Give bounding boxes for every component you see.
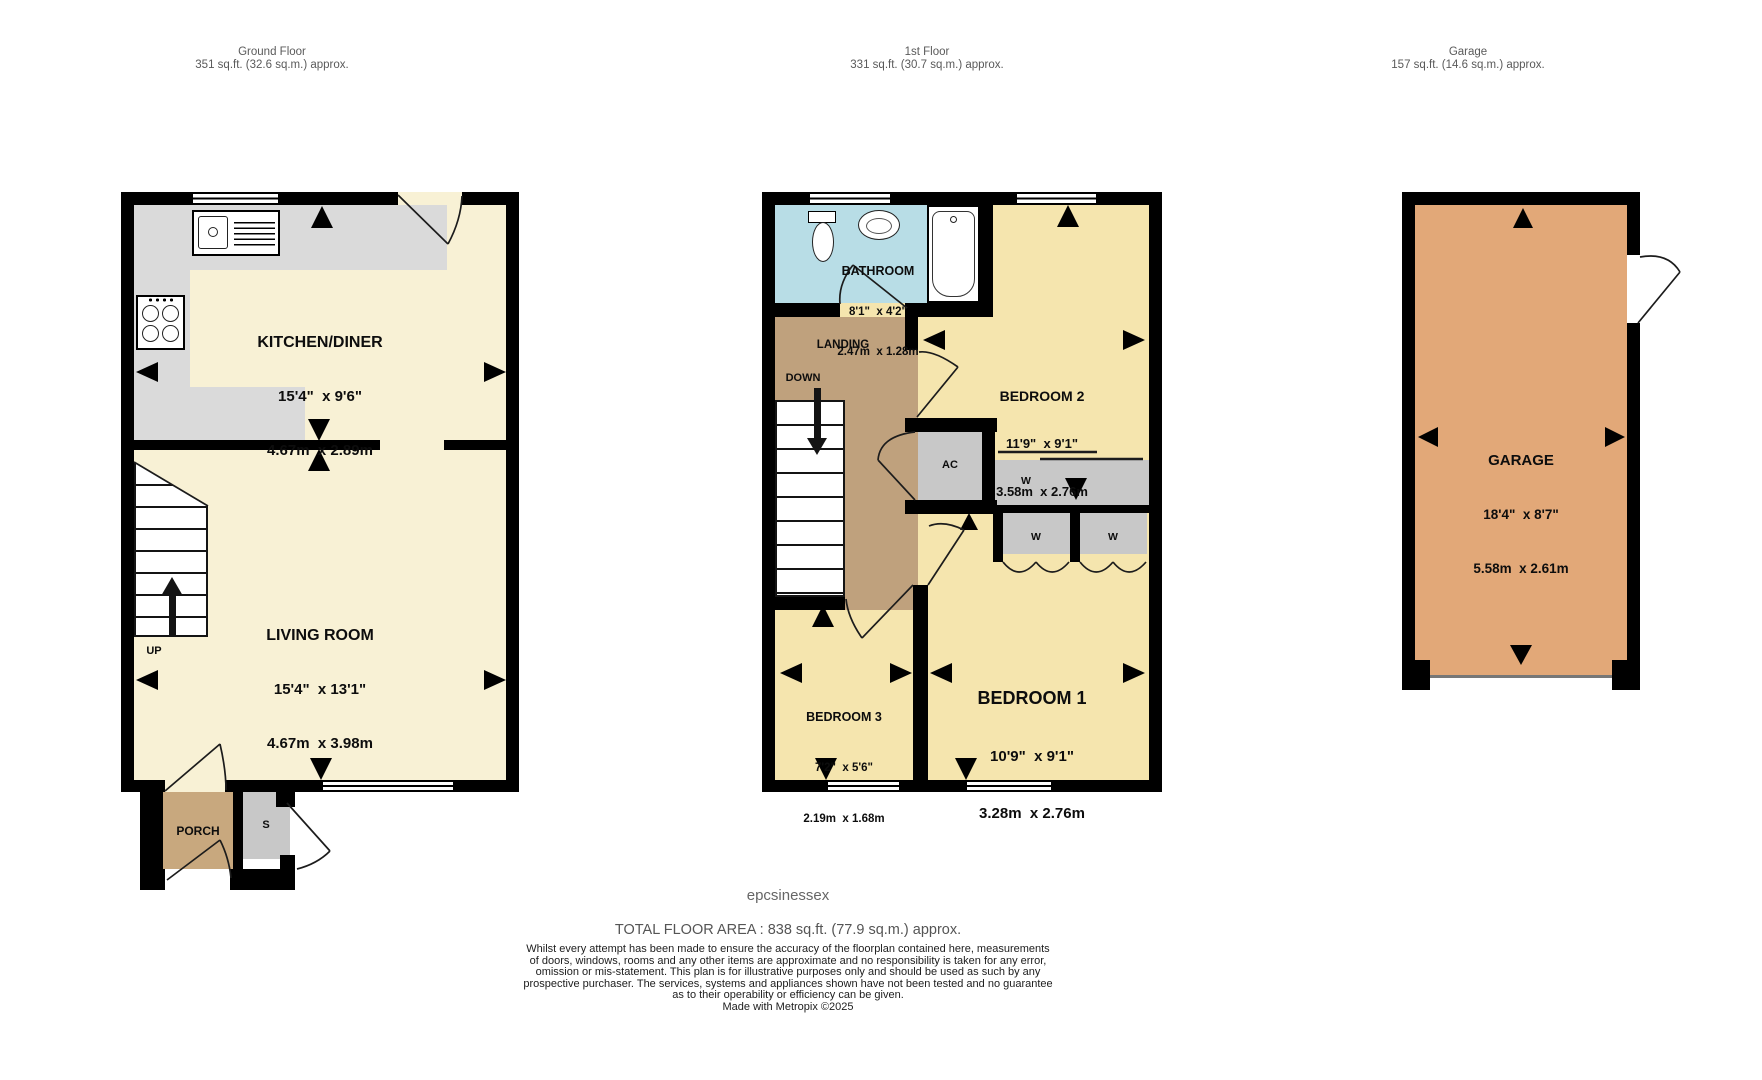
garage-door-line (1430, 675, 1612, 678)
floorplan-page: Ground Floor 351 sq.ft. (32.6 sq.m.) app… (0, 0, 1762, 1080)
landing-doorway-fill (845, 585, 913, 610)
first-floor-stairs (775, 400, 845, 597)
bedroom1-dims-metric: 3.28m x 2.76m (977, 805, 1086, 822)
up-arrow-icon (169, 595, 176, 635)
sink-drainer-icon (234, 218, 275, 249)
garage-header: Garage 157 sq.ft. (14.6 sq.m.) approx. (1391, 46, 1544, 72)
hob-burner-icon (162, 305, 179, 322)
first-floor-plan: BATHROOM 8'1" x 4'2" 2.47m x 1.28m LANDI… (762, 192, 1162, 792)
kitchen-window (193, 192, 278, 205)
toilet-bowl-icon (812, 222, 834, 262)
ac-wall-bottom (905, 500, 997, 514)
garage-dims-metric: 5.58m x 2.61m (1473, 560, 1568, 578)
arrow-left-icon (1418, 427, 1438, 447)
arrow-up-icon (1513, 208, 1533, 228)
outer-wall-right (1627, 323, 1640, 660)
living-room-dims-imperial: 15'4" x 13'1" (266, 681, 374, 699)
arrow-up-icon (812, 605, 834, 627)
porch-store-wall (233, 792, 243, 869)
down-arrow-head-icon (807, 438, 827, 455)
living-room-label: LIVING ROOM 15'4" x 13'1" 4.67m x 3.98m (266, 591, 374, 789)
first-floor-area: 331 sq.ft. (30.7 sq.m.) approx. (850, 59, 1003, 72)
arrow-up-icon (311, 206, 333, 228)
garage-dims-imperial: 18'4" x 8'7" (1473, 506, 1568, 524)
wardrobe-label: W (1021, 475, 1031, 487)
kitchen-living-wall (444, 440, 506, 450)
entry-door-opening (398, 192, 462, 205)
first-floor-header: 1st Floor 331 sq.ft. (30.7 sq.m.) approx… (850, 46, 1003, 72)
hob-burner-icon (162, 325, 179, 342)
hob-knobs-icon (147, 298, 175, 302)
hob-burner-icon (142, 305, 159, 322)
arrow-left-icon (923, 330, 945, 350)
arrow-left-icon (930, 663, 952, 683)
basin-inner-icon (866, 218, 892, 234)
garage-name: GARAGE (1473, 452, 1568, 470)
kitchen-label: KITCHEN/DINER 15'4" x 9'6" 4.67m x 2.89m (257, 298, 382, 496)
arrow-left-icon (136, 670, 158, 690)
living-room-name: LIVING ROOM (266, 627, 374, 645)
arrow-right-icon (1123, 663, 1145, 683)
outer-wall-right (1149, 192, 1162, 792)
outer-wall-bottom (453, 780, 519, 792)
bathroom-label: BATHROOM 8'1" x 4'2" 2.47m x 1.28m (837, 238, 918, 387)
bedroom3-label: BEDROOM 3 7'2" x 5'6" 2.19m x 1.68m (803, 675, 884, 862)
outer-wall-stub (1612, 660, 1640, 690)
up-label: UP (146, 645, 161, 657)
bathroom-wall-right (980, 192, 993, 317)
porch-label: PORCH (176, 824, 219, 838)
first-floor-title: 1st Floor (850, 46, 1003, 59)
outer-wall-top (278, 192, 398, 205)
garage-side-door-icon (1638, 256, 1680, 323)
garage-area: 157 sq.ft. (14.6 sq.m.) approx. (1391, 59, 1544, 72)
arrow-up-icon (960, 513, 978, 530)
ground-floor-plan: KITCHEN/DINER 15'4" x 9'6" 4.67m x 2.89m… (121, 192, 519, 898)
sink-drain-icon (208, 227, 218, 237)
outer-wall-top (462, 192, 519, 205)
store-wall-stub (280, 855, 295, 890)
kitchen-sink-icon (192, 210, 280, 256)
arrow-left-icon (136, 362, 158, 382)
arrow-left-icon (780, 663, 802, 683)
kitchen-dims-metric: 4.67m x 2.89m (257, 442, 382, 460)
garage-plan: GARAGE 18'4" x 8'7" 5.58m x 2.61m (1402, 192, 1640, 690)
outer-wall-top (121, 192, 193, 205)
bathroom-name: BATHROOM (837, 265, 918, 279)
ground-floor-header: Ground Floor 351 sq.ft. (32.6 sq.m.) app… (195, 46, 348, 72)
store-label: S (262, 819, 269, 831)
outer-wall-bottom (899, 780, 967, 792)
bedroom2-dims-imperial: 11'9" x 9'1" (996, 436, 1088, 452)
garage-title: Garage (1391, 46, 1544, 59)
bedroom1-dims-imperial: 10'9" x 9'1" (977, 748, 1086, 765)
kitchen-hob-icon (136, 295, 185, 350)
porch-wall-bottom (140, 869, 165, 890)
bedroom3-name: BEDROOM 3 (803, 709, 884, 726)
bedroom1-label: BEDROOM 1 10'9" x 9'1" 3.28m x 2.76m (977, 648, 1086, 862)
living-room-dims-metric: 4.67m x 3.98m (266, 735, 374, 753)
arrow-right-icon (484, 670, 506, 690)
outer-wall-left (121, 192, 134, 792)
outer-wall-left (762, 192, 775, 792)
bathroom-wall-bottom (907, 303, 993, 317)
disclaimer-text: Whilst every attempt has been made to en… (523, 944, 1052, 1014)
bathroom-dims-imperial: 8'1" x 4'2" (837, 306, 918, 320)
landing-label: LANDING (817, 339, 869, 351)
outer-wall-left (1402, 192, 1415, 660)
down-label: DOWN (786, 372, 821, 384)
bath-niche (927, 205, 980, 303)
arrow-down-icon (955, 758, 977, 780)
hob-burner-icon (142, 325, 159, 342)
total-floor-area: TOTAL FLOOR AREA : 838 sq.ft. (77.9 sq.m… (615, 922, 961, 939)
bathroom-window (810, 192, 890, 205)
arrow-right-icon (484, 362, 506, 382)
bath-tap-icon (950, 216, 957, 223)
bedroom2-dims-metric: 3.58m x 2.76m (996, 484, 1088, 500)
outer-wall-top (762, 192, 810, 205)
ground-floor-area: 351 sq.ft. (32.6 sq.m.) approx. (195, 59, 348, 72)
wardrobe-label: W (1108, 531, 1118, 543)
arrow-down-icon (1510, 645, 1532, 665)
outer-wall-right (1627, 192, 1640, 255)
outer-wall-top (890, 192, 1017, 205)
kitchen-dims-imperial: 15'4" x 9'6" (257, 388, 382, 406)
bedroom3-dims-imperial: 7'2" x 5'6" (803, 760, 884, 777)
wardrobe-label: W (1031, 531, 1041, 543)
outer-wall-stub (1402, 660, 1430, 690)
bedroom1-name: BEDROOM 1 (977, 688, 1086, 708)
bedroom1-bedroom3-wall (913, 585, 928, 780)
up-arrow-head-icon (161, 577, 183, 596)
ground-floor-title: Ground Floor (195, 46, 348, 59)
bedroom2-name: BEDROOM 2 (996, 388, 1088, 404)
bedroom3-dims-metric: 2.19m x 1.68m (803, 811, 884, 828)
garage-label: GARAGE 18'4" x 8'7" 5.58m x 2.61m (1473, 416, 1568, 614)
outer-wall-top (1096, 192, 1162, 205)
outer-wall-right (506, 192, 519, 792)
arrow-right-icon (890, 663, 912, 683)
arrow-right-icon (1605, 427, 1625, 447)
ac-label: AC (942, 459, 958, 471)
bedroom2-window (1017, 192, 1096, 205)
bedroom2-label: BEDROOM 2 11'9" x 9'1" 3.58m x 2.76m (996, 356, 1088, 532)
arrow-right-icon (1123, 330, 1145, 350)
front-door-opening (165, 780, 225, 792)
bathtub-icon (932, 211, 975, 297)
kitchen-name: KITCHEN/DINER (257, 334, 382, 352)
outer-wall-top (1402, 192, 1640, 205)
brand-text: epcsinessex (747, 887, 830, 904)
down-arrow-icon (814, 388, 821, 438)
arrow-up-icon (1057, 205, 1079, 227)
